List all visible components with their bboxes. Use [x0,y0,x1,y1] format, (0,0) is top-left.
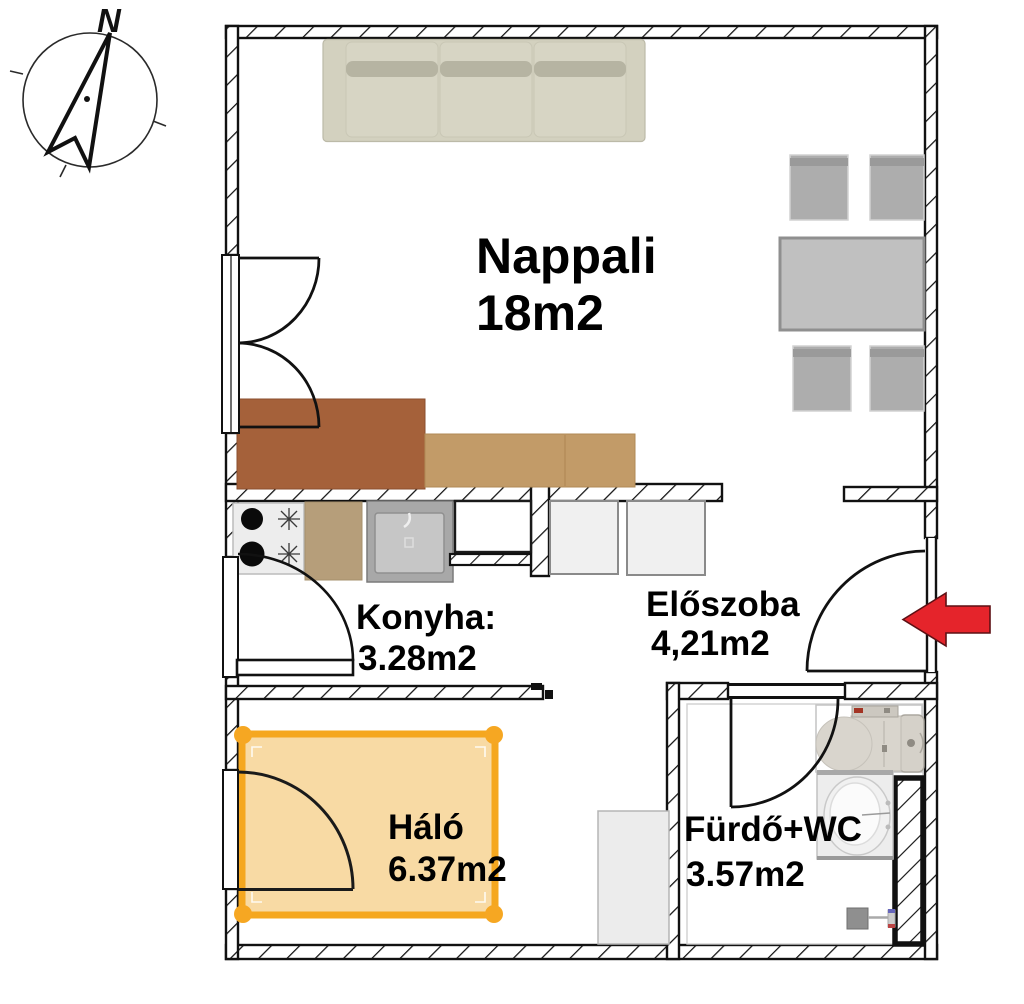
svg-text:6.37m2: 6.37m2 [388,850,507,889]
svg-text:Előszoba: Előszoba [646,585,800,624]
svg-text:4,21m2: 4,21m2 [651,624,770,663]
svg-text:N: N [97,2,122,39]
svg-text:Konyha:: Konyha: [356,598,496,637]
svg-text:Fürdő+WC: Fürdő+WC [684,810,862,849]
svg-text:3.28m2: 3.28m2 [358,639,477,678]
svg-text:Nappali: Nappali [476,228,657,284]
svg-text:Háló: Háló [388,808,464,847]
svg-text:3.57m2: 3.57m2 [686,855,805,894]
svg-text:18m2: 18m2 [476,285,604,341]
